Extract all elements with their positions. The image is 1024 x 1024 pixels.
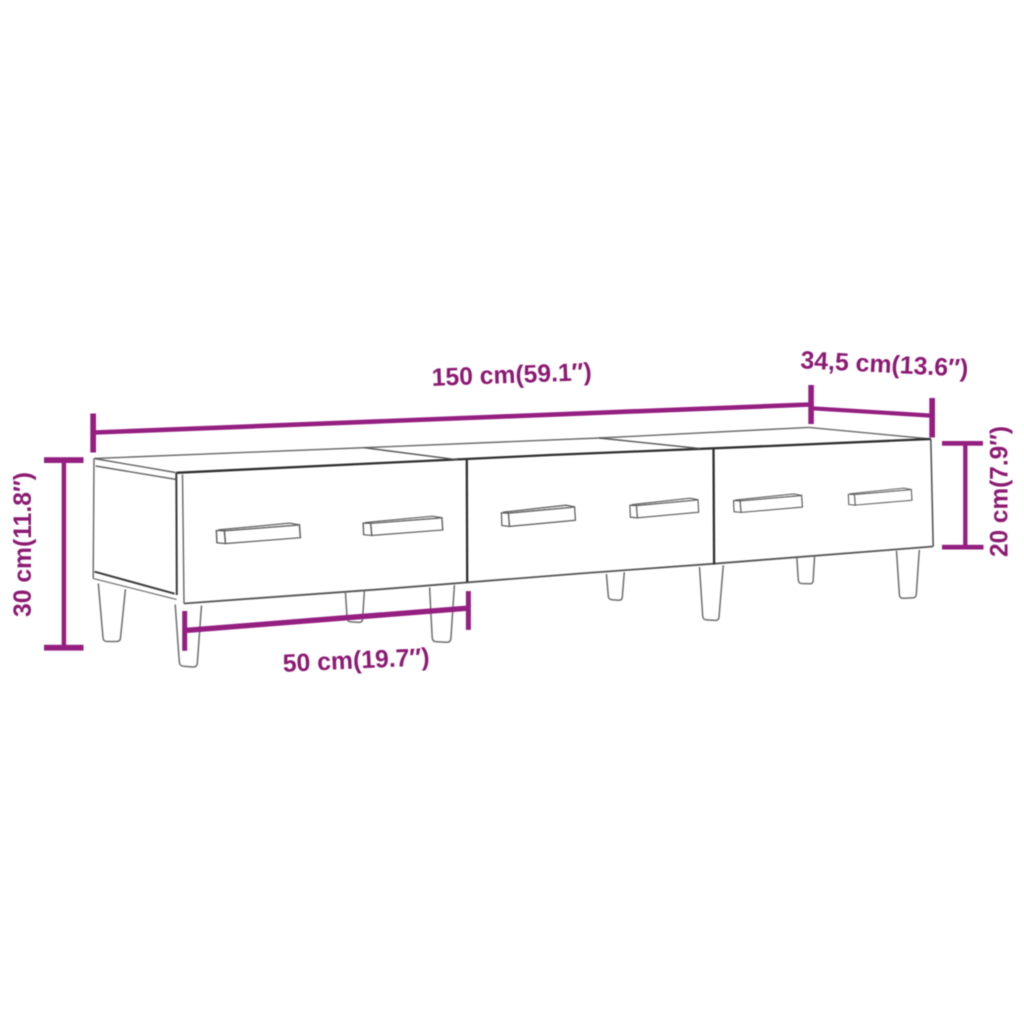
svg-text:150 cm(59.1″): 150 cm(59.1″) [431, 358, 592, 392]
svg-text:20 cm(7.9″): 20 cm(7.9″) [986, 426, 1014, 557]
svg-text:30 cm(11.8″): 30 cm(11.8″) [9, 472, 37, 617]
